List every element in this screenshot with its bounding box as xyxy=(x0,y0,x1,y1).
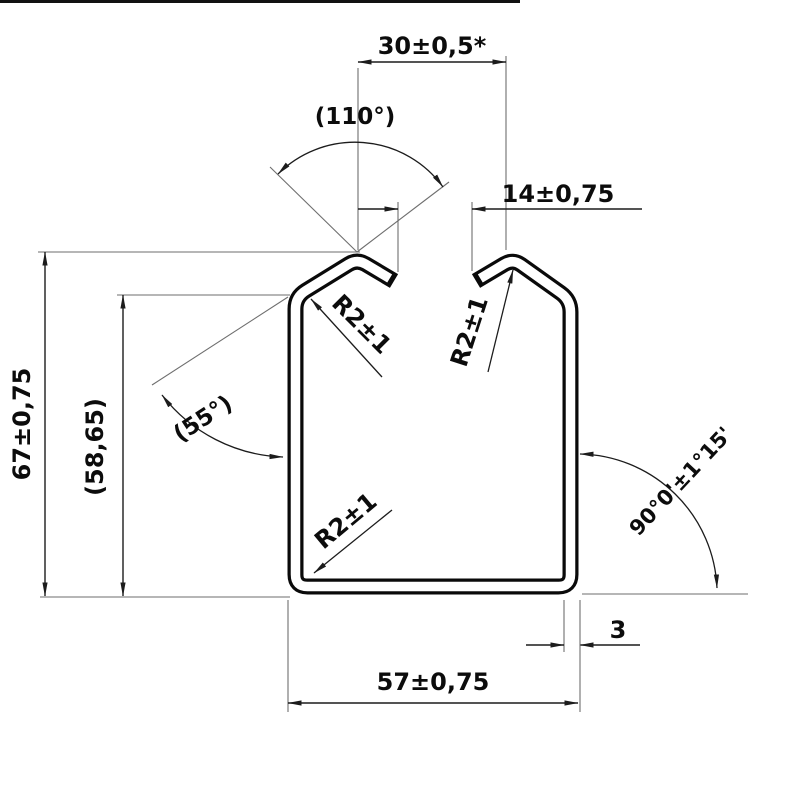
radius-top-left: R2±1 xyxy=(311,289,397,377)
dim-58-label: (58,65) xyxy=(81,398,109,496)
angle-55-label: (55°) xyxy=(169,391,237,448)
radius-bottom-left: R2±1 xyxy=(309,487,392,573)
radius-top-left-label: R2±1 xyxy=(326,289,397,360)
angle-110-label: (110°) xyxy=(315,104,396,130)
dim-67-label: 67±0,75 xyxy=(8,368,36,481)
dim-14-label: 14±0,75 xyxy=(502,180,615,208)
dimension-57: 57±0,75 xyxy=(288,600,580,712)
profile-cross-section-drawing: 30±0,5* 14±0,75 (110°) (55°) 67±0,75 (58… xyxy=(0,0,800,800)
dim-3-label: 3 xyxy=(610,616,627,644)
dimension-3: 3 xyxy=(526,600,640,652)
radius-right-label: R2±1 xyxy=(445,293,494,370)
angle-55: (55°) xyxy=(152,297,288,457)
radius-bottom-left-label: R2±1 xyxy=(309,487,382,555)
dim-30-label: 30±0,5* xyxy=(378,32,487,60)
technical-drawing-page: 30±0,5* 14±0,75 (110°) (55°) 67±0,75 (58… xyxy=(0,0,800,800)
dim-57-label: 57±0,75 xyxy=(377,668,490,696)
dimension-30: 30±0,5* xyxy=(358,32,506,250)
angle-110: (110°) xyxy=(270,104,449,252)
angle-90: 90°0'±1°15' xyxy=(580,422,748,594)
angle-90-label: 90°0'±1°15' xyxy=(625,422,737,540)
